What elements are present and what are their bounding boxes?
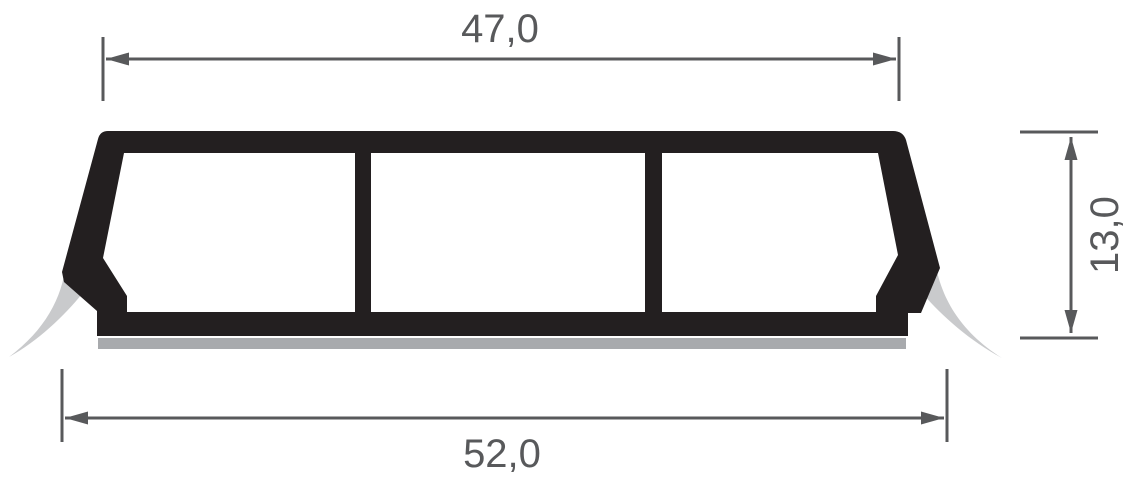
arrow-right-icon [873,53,896,66]
profile-shape [9,131,1002,358]
profile-drawing-svg: 47,0 52,0 13,0 [0,0,1124,480]
dimension-height: 13,0 [1020,132,1124,338]
dimension-top-width: 47,0 [103,7,899,101]
arrow-left-icon [65,412,88,425]
arrow-up-icon [1065,137,1078,160]
arrow-left-icon [106,53,129,66]
profile-body [62,131,940,336]
arrow-down-icon [1065,310,1078,333]
overall-width-label: 52,0 [463,432,541,476]
dimension-overall-width: 52,0 [62,369,947,476]
arrow-right-icon [921,412,944,425]
base-strip [98,338,906,349]
technical-drawing: 47,0 52,0 13,0 [0,0,1124,480]
top-width-label: 47,0 [461,7,539,51]
height-label: 13,0 [1083,196,1124,274]
